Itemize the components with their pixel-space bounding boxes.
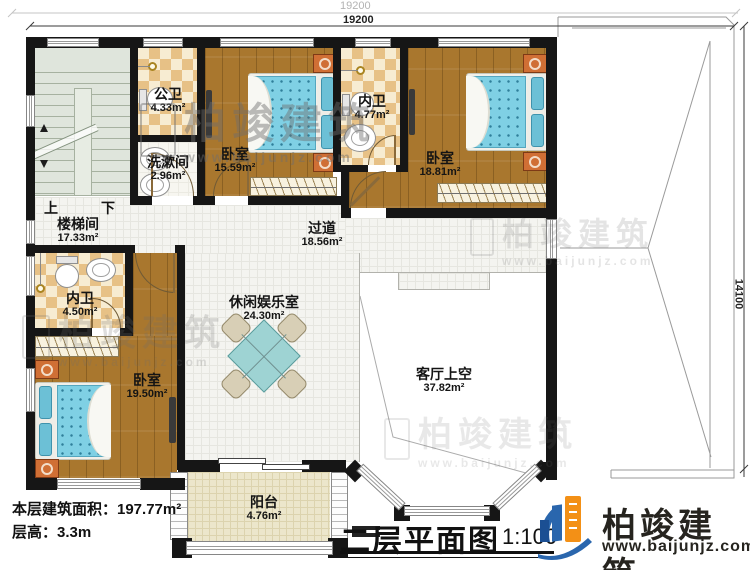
- bed: [35, 382, 111, 460]
- wardrobe: [35, 336, 119, 357]
- room-label-balcony: 阳台 4.76m²: [229, 494, 299, 523]
- sliding-door: [262, 464, 310, 470]
- stair-stringer: [74, 88, 92, 196]
- sink: [86, 258, 116, 282]
- wall-segment: [386, 208, 557, 218]
- sliding-door: [218, 458, 266, 464]
- wall-segment: [333, 37, 341, 172]
- wall-segment: [26, 478, 57, 490]
- window: [26, 256, 35, 296]
- room-label-bedroom3: 卧室 19.50m²: [112, 372, 182, 401]
- wall-segment: [26, 328, 92, 336]
- wardrobe: [437, 183, 547, 203]
- wall-segment: [341, 165, 349, 218]
- bed-pillow: [39, 423, 52, 456]
- dimension-right: 14100: [732, 279, 744, 310]
- stair-up-label: 上: [44, 198, 58, 218]
- toilet: [56, 256, 78, 264]
- room-label-hallway: 过道 18.56m²: [287, 220, 357, 249]
- lamp-cord: [341, 70, 358, 71]
- tv: [409, 89, 415, 135]
- room-label-leisure: 休闲娱乐室 24.30m²: [212, 294, 316, 323]
- bay-window: [356, 464, 405, 511]
- window: [47, 38, 99, 47]
- dimension-top-inner: 19200: [343, 14, 374, 26]
- toilet: [55, 264, 79, 288]
- window: [26, 95, 35, 127]
- room-label-living-void: 客厅上空 37.82m²: [402, 366, 486, 395]
- wall-segment: [130, 196, 152, 205]
- window: [355, 38, 391, 47]
- window: [57, 479, 141, 489]
- hallway-floor-right: [345, 218, 546, 273]
- stair-down-label: 下: [101, 198, 115, 218]
- door-leaf: [173, 253, 175, 293]
- bed-pillow: [531, 114, 544, 147]
- hallway-floor-step: [398, 273, 490, 290]
- room-label-public-bath: 公卫 4.33m²: [138, 86, 198, 115]
- nightstand: [523, 152, 547, 171]
- wall-segment: [130, 135, 205, 142]
- wall-segment: [140, 478, 185, 490]
- nightstand: [35, 459, 59, 478]
- bed: [248, 73, 338, 153]
- bay-window: [404, 506, 490, 516]
- bay-window: [492, 464, 541, 511]
- dimension-top-outer: 19200: [340, 0, 371, 12]
- nightstand: [523, 54, 547, 73]
- room-label-ensuite1: 内卫 4.77m²: [342, 93, 402, 122]
- wall-segment: [177, 245, 185, 470]
- door-leaf: [394, 135, 396, 165]
- wall-segment: [333, 165, 368, 172]
- wall-segment: [205, 196, 215, 205]
- bed-pillow: [531, 77, 544, 110]
- wall-segment: [26, 245, 135, 253]
- brand-logo-icon: [536, 490, 598, 562]
- bed-pillow: [39, 386, 52, 419]
- floor-plan: 19200 19200 14100: [0, 0, 750, 570]
- sink: [344, 124, 376, 152]
- room-label-bedroom1: 卧室 15.59m²: [200, 146, 270, 175]
- wall-segment: [193, 196, 205, 205]
- lamp-cord: [138, 66, 150, 67]
- floor-area-text: 本层建筑面积：197.77m²: [12, 498, 181, 519]
- wall-segment: [125, 253, 133, 333]
- tv: [206, 90, 212, 138]
- brand-url: www.baijunjz.com: [602, 538, 750, 556]
- brand-name: 柏竣建筑: [602, 498, 750, 570]
- window: [220, 38, 314, 47]
- tv: [169, 397, 176, 443]
- wall-segment: [178, 460, 220, 472]
- nightstand: [35, 360, 59, 379]
- room-label-bedroom2: 卧室 18.81m²: [405, 150, 475, 179]
- window: [546, 219, 557, 259]
- room-label-stairwell: 楼梯间 17.33m²: [28, 216, 128, 245]
- title-underline: [340, 551, 554, 554]
- lamp-cord: [40, 253, 41, 285]
- floor-height-text: 层高：3.3m: [12, 521, 91, 542]
- wardrobe: [250, 177, 337, 196]
- balcony-rail: [186, 541, 333, 555]
- roof-outline: [558, 17, 734, 478]
- window: [438, 38, 530, 47]
- window: [143, 38, 183, 47]
- ceiling-lamp-icon: [36, 284, 45, 293]
- stair-direction-arrow: [40, 124, 48, 132]
- watermark-logo-icon: [384, 418, 410, 460]
- wall-segment: [248, 196, 345, 205]
- room-label-ensuite2: 内卫 4.50m²: [48, 290, 112, 319]
- window: [26, 368, 35, 412]
- title-underline: [340, 557, 554, 558]
- stair-direction-arrow: [40, 160, 48, 168]
- room-label-washroom: 洗漱间 2.96m²: [134, 154, 202, 183]
- bed: [466, 73, 548, 151]
- bay-post: [541, 462, 557, 474]
